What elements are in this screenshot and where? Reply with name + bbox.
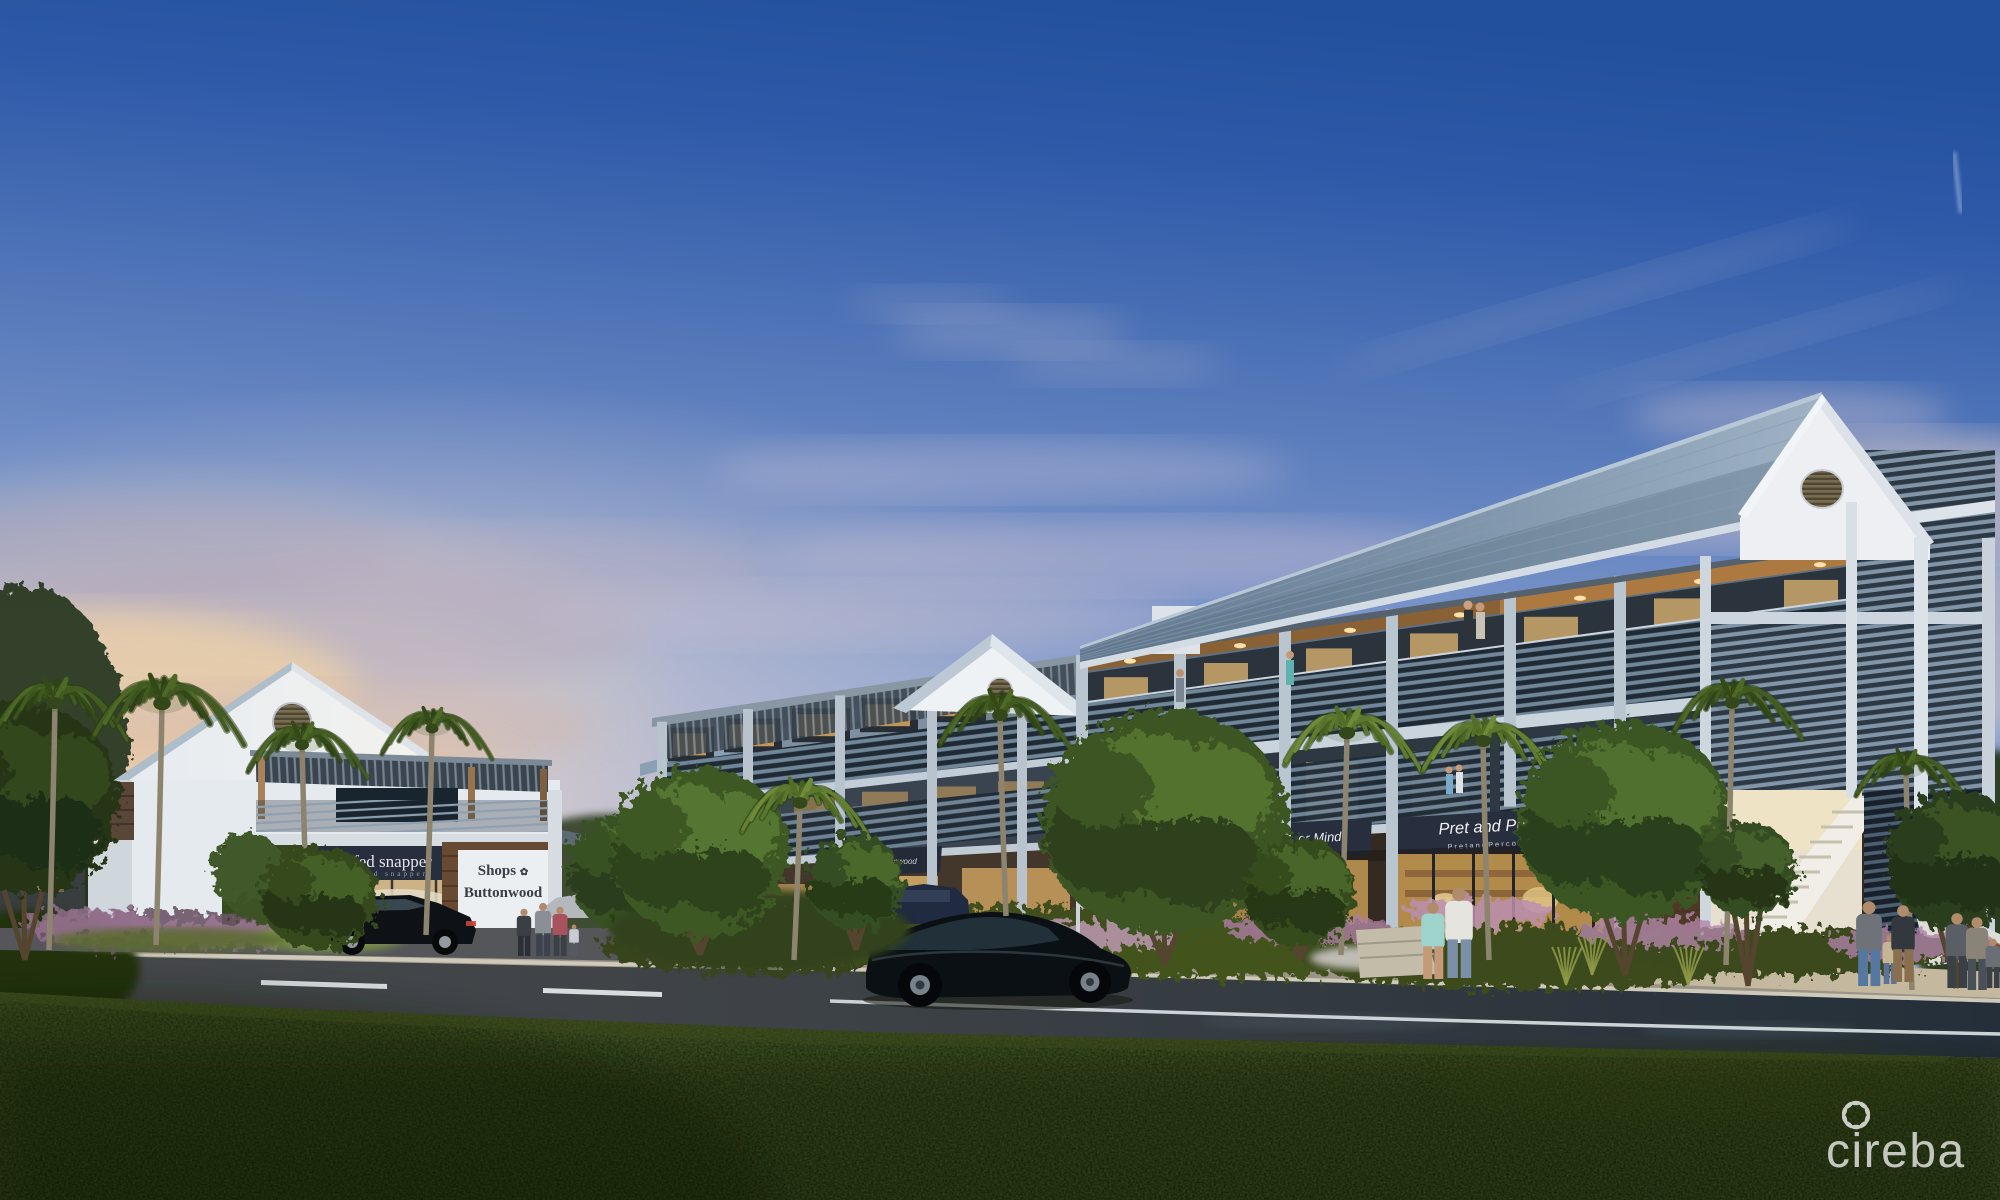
svg-text:Buttonwood: Buttonwood <box>464 885 543 901</box>
svg-text:cireba: cireba <box>1826 1125 1966 1178</box>
